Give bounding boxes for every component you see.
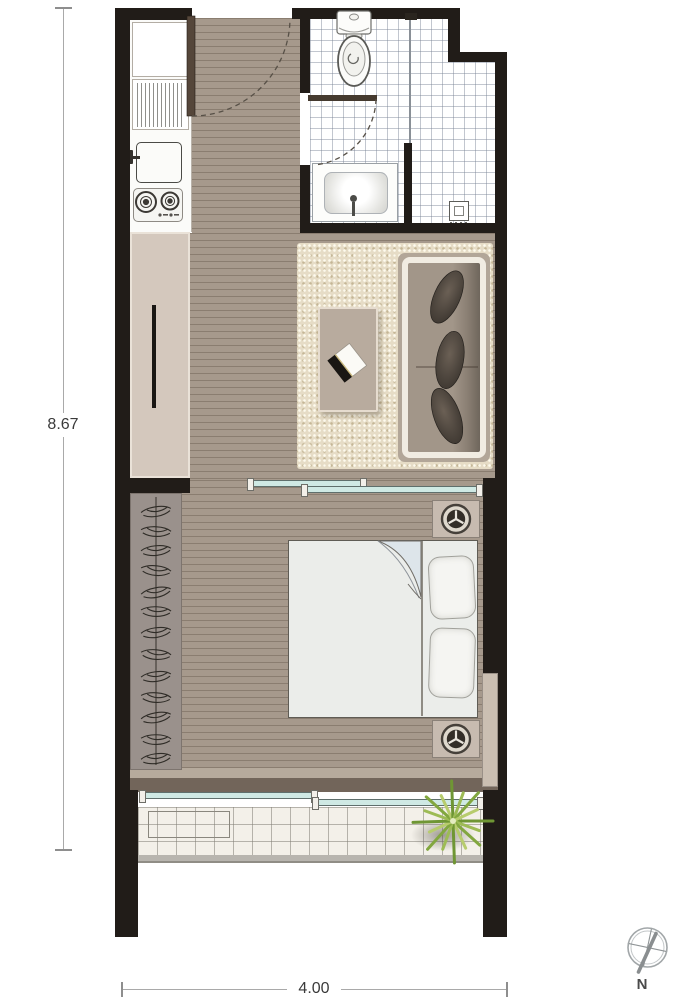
pillow <box>428 627 476 699</box>
wall-right-upper <box>495 52 507 482</box>
compass-icon <box>625 925 675 977</box>
entry-hall-floor <box>192 18 300 233</box>
nightstand <box>432 500 480 538</box>
sliding-glass-partition-right <box>302 486 482 493</box>
stove-icon <box>133 188 183 222</box>
wall-bathroom-left-upper <box>300 8 310 93</box>
nightstand <box>432 720 480 758</box>
dimension-tick <box>121 982 123 997</box>
wall-bathroom-bottom <box>300 223 507 233</box>
wall-bathroom-left-lower <box>300 165 310 233</box>
balcony-sliding-door-left <box>140 792 317 799</box>
wall-left <box>115 8 130 790</box>
dimension-height-label: 8.67 <box>38 413 88 437</box>
column-left <box>115 790 138 937</box>
shower-drain-inner <box>454 206 464 216</box>
dish-rack-icon <box>132 79 189 130</box>
bed-headboard-split <box>421 541 423 716</box>
dimension-tick <box>55 7 72 9</box>
plant-icon <box>405 775 503 871</box>
pillow <box>427 555 476 620</box>
dish-rack-stripes <box>137 83 185 127</box>
kitchen-sink-icon <box>136 142 182 183</box>
sofa-frame <box>402 257 486 458</box>
balcony-mat-outline <box>148 811 230 838</box>
shower-partition-wall <box>404 143 412 223</box>
kitchen-worktop <box>132 22 189 77</box>
wardrobe-hangers-icon <box>130 493 182 770</box>
coffee-table <box>318 307 378 412</box>
cabinet-handle <box>152 305 156 408</box>
dimension-tick <box>55 849 72 851</box>
wall-top-right <box>292 8 460 19</box>
compass-north-label: N <box>632 974 652 994</box>
wall-divider-stub-left <box>115 478 190 493</box>
dimension-width-label: 4.00 <box>287 978 341 999</box>
floor-plan: 8.67 4.00 N <box>0 0 679 1000</box>
wall-right-bedroom <box>483 478 507 673</box>
dimension-tick <box>506 982 508 997</box>
shower-glass-partition <box>409 17 411 145</box>
wall-inset-panel <box>482 673 498 787</box>
sofa-seat-split <box>416 366 478 368</box>
washbasin-tap-icon <box>350 195 357 202</box>
sofa <box>398 253 490 462</box>
washbasin-spout-icon <box>352 202 355 216</box>
kitchen-tap-spout <box>132 156 140 159</box>
washbasin-bowl <box>324 172 388 214</box>
tall-cabinet <box>130 232 190 478</box>
